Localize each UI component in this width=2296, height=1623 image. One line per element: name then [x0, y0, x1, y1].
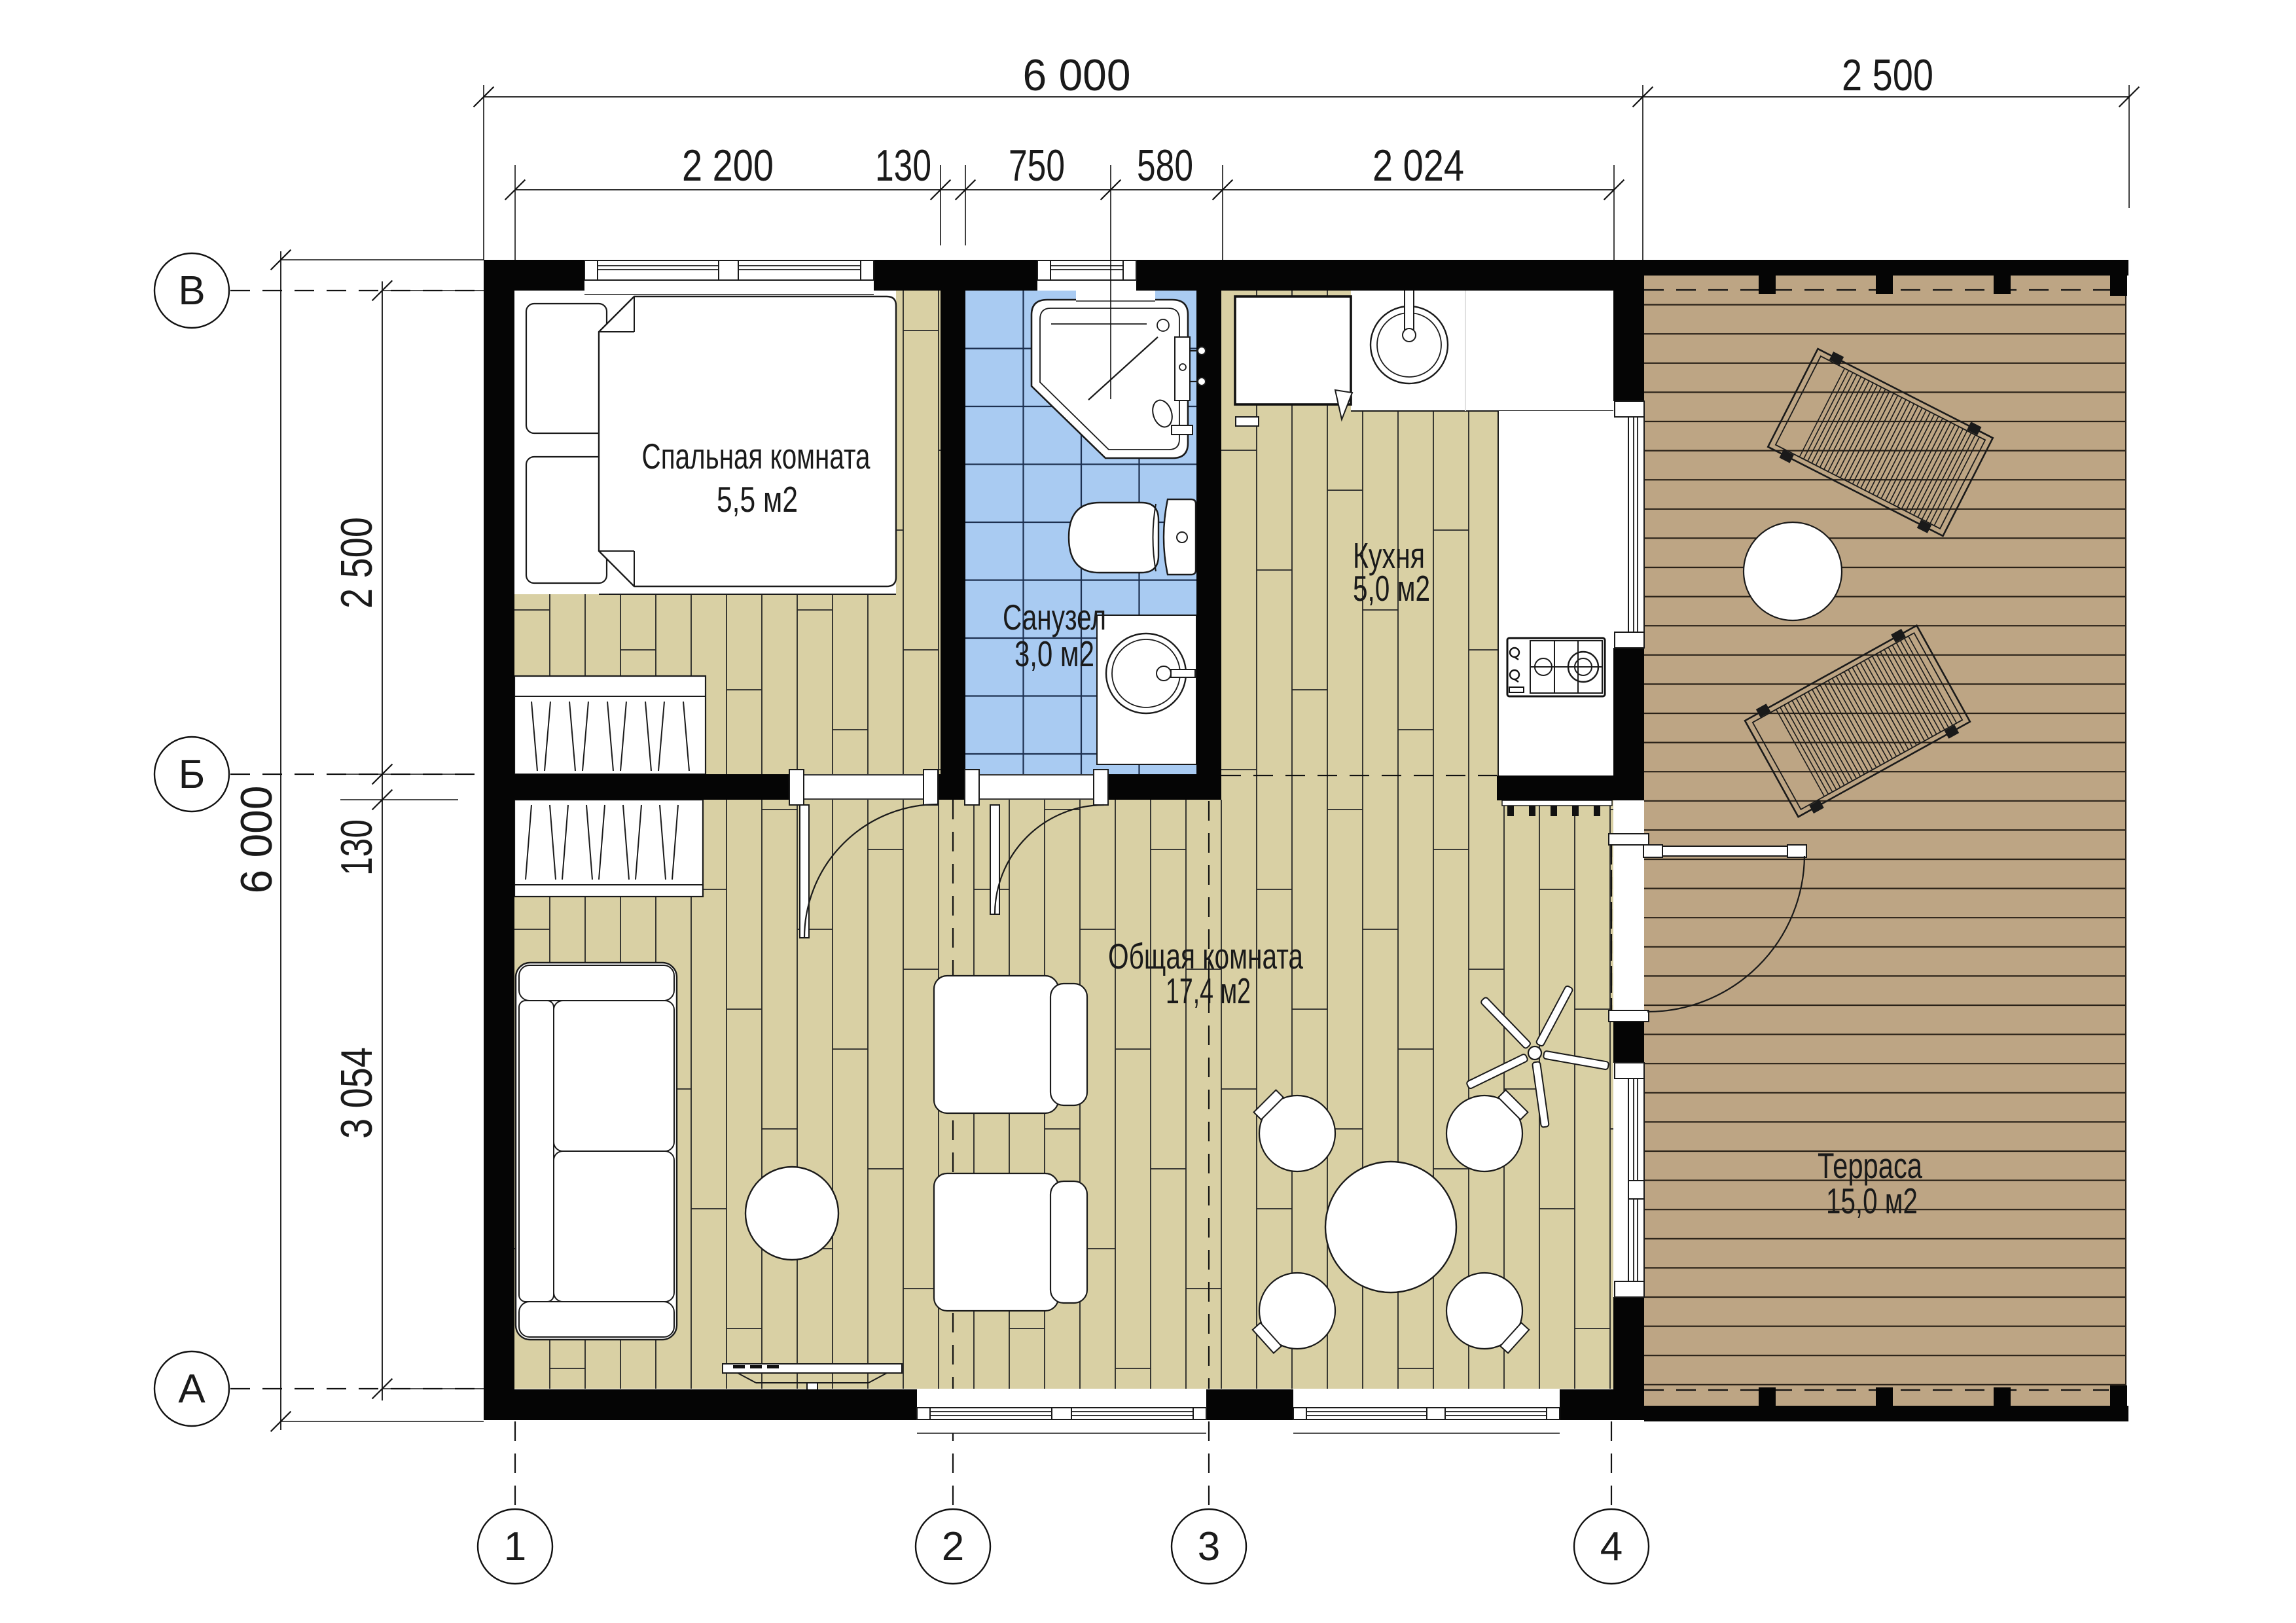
svg-text:130: 130: [875, 141, 931, 190]
svg-text:3: 3: [1198, 1524, 1220, 1569]
svg-text:17,4 м2: 17,4 м2: [1166, 971, 1251, 1011]
svg-text:2 200: 2 200: [682, 141, 774, 190]
svg-text:Терраса: Терраса: [1818, 1145, 1922, 1186]
svg-text:3 054: 3 054: [332, 1047, 382, 1139]
svg-text:Б: Б: [179, 752, 206, 797]
svg-text:Санузел: Санузел: [1003, 597, 1106, 637]
svg-text:А: А: [178, 1366, 206, 1412]
svg-text:Спальная комната: Спальная комната: [642, 436, 870, 476]
svg-text:6 000: 6 000: [1023, 50, 1131, 100]
svg-text:130: 130: [332, 819, 382, 876]
svg-text:2: 2: [942, 1524, 964, 1569]
svg-text:750: 750: [1009, 141, 1065, 190]
svg-text:15,0 м2: 15,0 м2: [1826, 1181, 1918, 1221]
svg-text:2 500: 2 500: [332, 517, 382, 609]
svg-text:580: 580: [1137, 141, 1193, 190]
svg-text:2 024: 2 024: [1372, 141, 1464, 190]
svg-text:5,5 м2: 5,5 м2: [717, 479, 798, 520]
svg-text:4: 4: [1600, 1524, 1623, 1569]
svg-text:3,0 м2: 3,0 м2: [1014, 633, 1094, 674]
svg-text:6 000: 6 000: [232, 786, 281, 894]
svg-text:1: 1: [504, 1524, 526, 1569]
svg-text:2 500: 2 500: [1842, 50, 1933, 100]
svg-text:5,0 м2: 5,0 м2: [1353, 568, 1430, 609]
svg-text:В: В: [178, 268, 205, 313]
